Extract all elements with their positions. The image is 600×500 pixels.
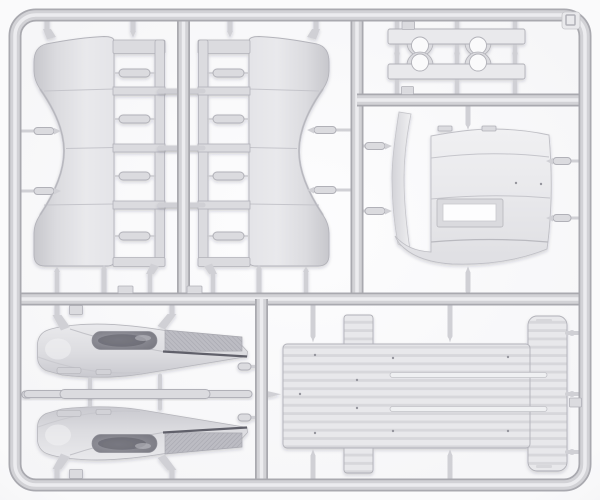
platform-slot-lower: [390, 407, 547, 412]
roof-hatch-opening: [443, 204, 496, 221]
corner-tab: [562, 12, 580, 29]
long-rod: [22, 390, 281, 399]
sprue-photo: [0, 0, 600, 500]
platform-slot-upper: [390, 373, 547, 378]
sprue-drawing: [0, 0, 600, 500]
